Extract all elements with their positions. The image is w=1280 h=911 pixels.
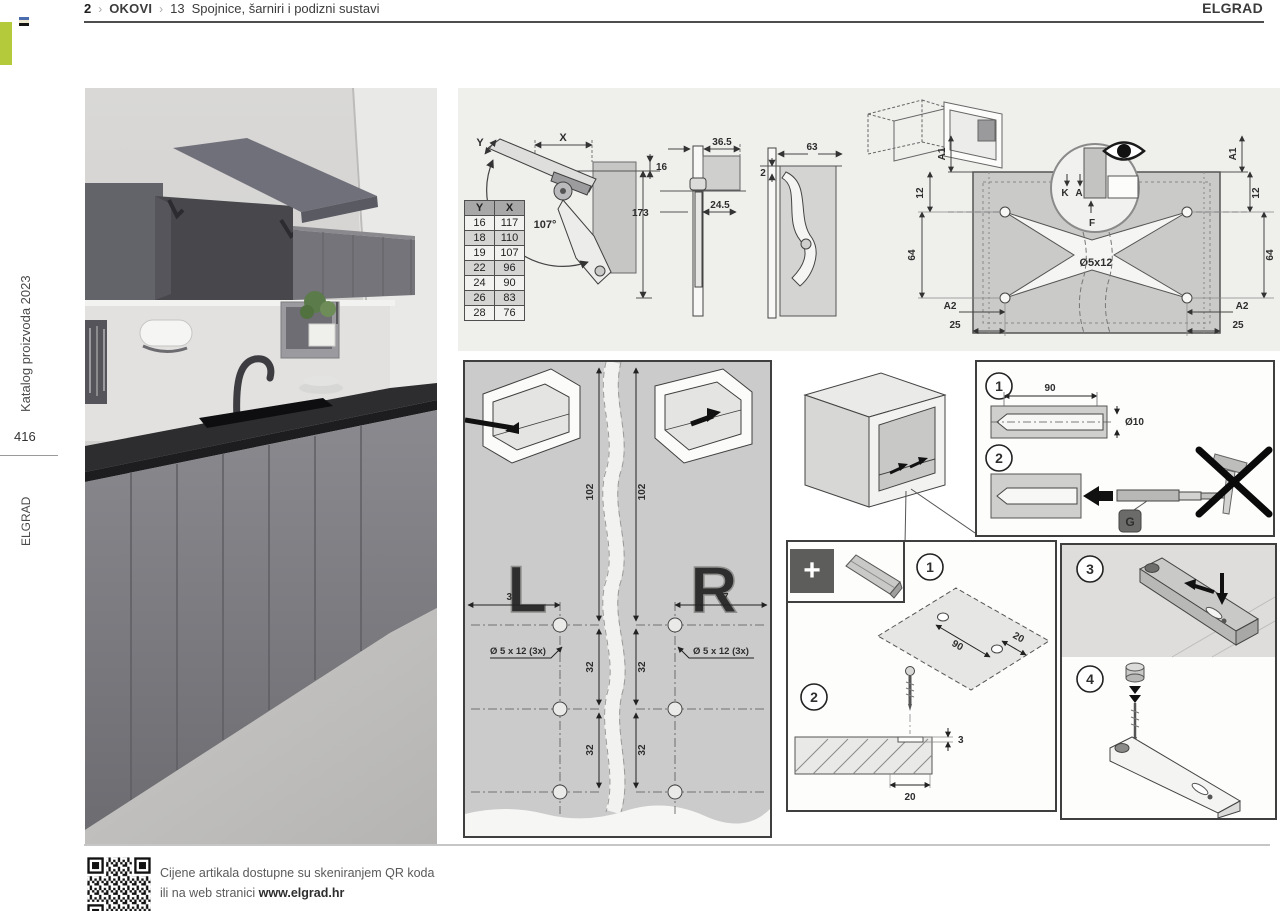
cell-x: 107 xyxy=(495,246,525,261)
photo-light-rail xyxy=(85,300,395,306)
letter-left: L xyxy=(507,552,547,626)
d12-label: 12 xyxy=(915,187,926,199)
step-2-number: 2 xyxy=(995,450,1003,466)
dim-x-label: X xyxy=(559,132,567,144)
step-1-number: 1 xyxy=(995,378,1003,394)
breadcrumb-page-number: 2 xyxy=(84,1,91,16)
d25-label: 25 xyxy=(1232,320,1244,331)
cell-x: 110 xyxy=(495,231,525,246)
dim-24-5-label: 24.5 xyxy=(710,200,730,211)
cell-y: 26 xyxy=(465,291,495,306)
dowel-illustration xyxy=(788,542,903,601)
bar-steps-diagram: 3 4 xyxy=(1062,545,1275,818)
accent-green-bar xyxy=(0,22,12,65)
table-header-y: Y xyxy=(465,201,495,216)
drilling-pattern-diagram: Ø5x12 K A F A1 12 64 A2 25 A1 xyxy=(852,88,1280,351)
profile-views-diagram: 36.5 24.5 63 2 xyxy=(660,88,850,351)
extra-dowel-box: + xyxy=(786,540,905,603)
cell-y: 18 xyxy=(465,231,495,246)
cell-x: 83 xyxy=(495,291,525,306)
k-label: K xyxy=(1061,188,1069,199)
dim-37-left: 37 xyxy=(506,592,518,603)
dowel-rod xyxy=(1117,490,1225,501)
yx-dimension-table: Y X 16117 18110 19107 2296 2490 2683 287… xyxy=(464,200,525,321)
sidebar-divider xyxy=(0,455,58,456)
dim-32: 32 xyxy=(637,744,648,756)
letter-right: R xyxy=(690,552,738,626)
dim-y-label: Y xyxy=(476,137,484,149)
panel-cross-section xyxy=(795,737,932,774)
cabinet-isometric xyxy=(868,100,1002,168)
flag-stripe-dark xyxy=(19,23,29,26)
sidebar-catalog-title: Katalog proizvoda 2023 xyxy=(18,275,33,412)
qr-code xyxy=(85,855,153,911)
step-3-number: 3 xyxy=(1086,561,1094,577)
drill-hole xyxy=(1000,293,1010,303)
hole-spec-label: Ø5x12 xyxy=(1079,257,1112,269)
dim-32: 32 xyxy=(585,744,596,756)
table-header-x: X xyxy=(495,201,525,216)
table-row: 2683 xyxy=(465,291,525,306)
angle-label: 107° xyxy=(534,219,557,231)
kitchen-photo xyxy=(85,88,437,845)
catalog-page: 2 › OKOVI › 13 Spojnice, šarniri i podiz… xyxy=(0,0,1280,911)
dim-32: 32 xyxy=(637,661,648,673)
lr-drilling-panel: L R 102 102 37 37 xyxy=(463,360,772,838)
screw-hole xyxy=(938,613,949,621)
d25-label: 25 xyxy=(949,320,961,331)
flag-icon xyxy=(19,17,29,26)
d12-label: 12 xyxy=(1251,187,1262,199)
dim-173-label: 173 xyxy=(632,208,649,219)
milled-pocket xyxy=(898,737,923,742)
mounting-bar xyxy=(1110,737,1240,818)
drill-hole xyxy=(1182,207,1192,217)
dim-63-label: 63 xyxy=(806,142,818,153)
footer-note-prefix: ili na web stranici xyxy=(160,886,259,900)
a2-label: A2 xyxy=(1236,301,1249,312)
table-row: 16117 xyxy=(465,216,525,231)
photo-plant-pot xyxy=(309,324,335,346)
a1-label: A1 xyxy=(1228,147,1239,160)
dim-90-label: 90 xyxy=(1044,383,1056,394)
table-row: 19107 xyxy=(465,246,525,261)
f-label: F xyxy=(1089,218,1095,229)
cell-y: 24 xyxy=(465,276,495,291)
table-row: 18110 xyxy=(465,231,525,246)
cell-y: 19 xyxy=(465,246,495,261)
chevron-right-icon: › xyxy=(159,2,163,16)
chevron-right-icon: › xyxy=(98,2,102,16)
cell-x: 117 xyxy=(495,216,525,231)
cabinet-right-isometric xyxy=(655,369,752,463)
dowel-drilling-diagram: 1 90 Ø10 2 xyxy=(977,362,1273,535)
photo-upper-cabinet-right xyxy=(293,230,415,300)
step-2-number: 2 xyxy=(810,689,818,705)
step-4-number: 4 xyxy=(1086,671,1094,687)
bar-steps-panel: 3 4 xyxy=(1060,543,1277,820)
table-row: 2296 xyxy=(465,261,525,276)
a2-label: A2 xyxy=(944,301,957,312)
wall-profile xyxy=(768,148,776,318)
dim-20-bottom-label: 20 xyxy=(904,792,916,803)
sidebar-page-number: 416 xyxy=(14,429,36,444)
dim-37-right: 37 xyxy=(717,592,729,603)
drill-hole xyxy=(1000,207,1010,217)
dim-102-right: 102 xyxy=(637,483,648,500)
footer-note-line1: Cijene artikala dostupne su skeniranjem … xyxy=(160,866,434,880)
photo-upper-cabinet-left xyxy=(85,183,163,305)
screw-hole xyxy=(992,645,1003,653)
dim-36-5-label: 36.5 xyxy=(712,137,732,148)
dim-2-label: 2 xyxy=(760,168,766,179)
wall-cabinet-isometric xyxy=(786,355,975,545)
table-row: 2490 xyxy=(465,276,525,291)
d64-label: 64 xyxy=(1265,249,1276,261)
sidebar-brand-vertical: ELGRAD xyxy=(19,497,33,546)
hole-spec-right: Ø 5 x 12 (3x) xyxy=(693,646,749,657)
dim-3-label: 3 xyxy=(958,735,964,746)
cell-y: 22 xyxy=(465,261,495,276)
insert-arrow xyxy=(1083,486,1113,506)
no-hammer-icon xyxy=(1199,450,1269,514)
footer-divider xyxy=(84,844,1270,846)
header-divider xyxy=(84,21,1264,23)
cabinet-left-isometric xyxy=(465,369,580,463)
wavy-break-line xyxy=(610,362,617,812)
website-link[interactable]: www.elgrad.hr xyxy=(259,886,345,900)
dim-102-left: 102 xyxy=(585,483,596,500)
dim-dia-label: Ø10 xyxy=(1125,417,1144,428)
cell-x: 96 xyxy=(495,261,525,276)
g-label: G xyxy=(1125,515,1134,529)
brand-logo-text: ELGRAD xyxy=(1202,0,1263,16)
footer-note-line2: ili na web stranici www.elgrad.hr xyxy=(160,886,344,900)
breadcrumb: 2 › OKOVI › 13 Spojnice, šarniri i podiz… xyxy=(84,1,379,16)
cell-y: 28 xyxy=(465,306,495,321)
top-panel xyxy=(703,156,740,190)
lr-diagram: L R 102 102 37 37 xyxy=(465,362,770,836)
photo-paper-towel-roll xyxy=(140,320,192,346)
breadcrumb-section: OKOVI xyxy=(109,1,152,16)
cell-y: 16 xyxy=(465,216,495,231)
hole-spec-left: Ø 5 x 12 (3x) xyxy=(490,646,546,657)
breadcrumb-chapter-title: Spojnice, šarniri i podizni sustavi xyxy=(192,1,380,16)
step-1-number: 1 xyxy=(926,559,934,575)
cover-cap xyxy=(1126,663,1144,682)
cell-x: 90 xyxy=(495,276,525,291)
dowel-drilling-panel: 1 90 Ø10 2 xyxy=(975,360,1275,537)
dim-32: 32 xyxy=(585,661,596,673)
drill-hole xyxy=(1182,293,1192,303)
table-row: 2876 xyxy=(465,306,525,321)
cell-x: 76 xyxy=(495,306,525,321)
screw xyxy=(906,667,915,712)
a1-label: A1 xyxy=(937,147,948,160)
d64-label: 64 xyxy=(907,249,918,261)
a-label: A xyxy=(1075,188,1082,199)
breadcrumb-chapter-number: 13 xyxy=(170,1,184,16)
